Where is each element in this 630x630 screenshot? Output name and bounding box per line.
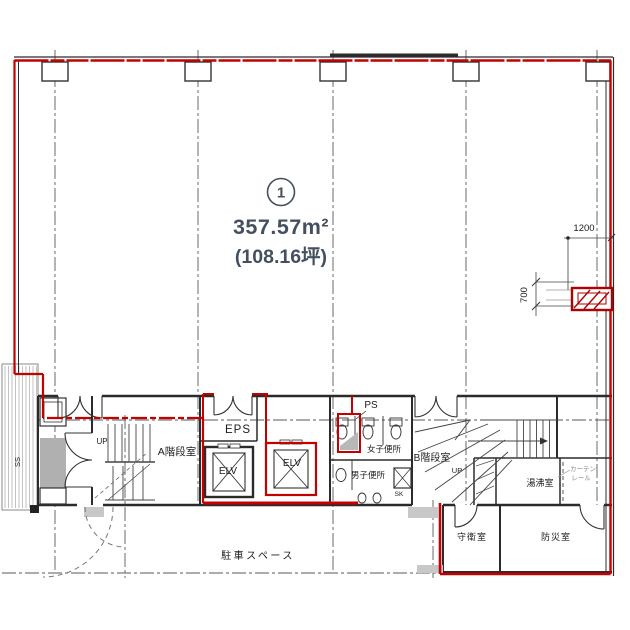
- dim-700-label: 700: [519, 287, 530, 303]
- red-boundary: [15, 60, 612, 574]
- unit-number: 1: [277, 185, 285, 202]
- floor-plan-svg: 1200 700 1 357.57m² (108.16坪) A階段室 UP EP…: [0, 0, 630, 630]
- hot-water-room-label: 湯沸室: [526, 477, 553, 488]
- louver-hatch: [2, 364, 38, 510]
- stair-a-label: A階段室: [158, 445, 197, 458]
- womens-toilet-label: 女子便所: [367, 444, 402, 454]
- elv-right-label: ELV: [283, 458, 301, 469]
- red-detail-box: [546, 288, 612, 310]
- unit-area-label: 1 357.57m² (108.16坪): [233, 179, 329, 269]
- curtain-rail-label-1: カーテン: [570, 465, 596, 473]
- stair-b-label: B階段室: [414, 451, 451, 464]
- eps-label: EPS: [225, 424, 251, 436]
- disaster-room-label: 防災室: [541, 531, 571, 542]
- unit-area-sqm: 357.57m²: [233, 215, 329, 239]
- up-b-label: UP: [452, 466, 462, 475]
- sk-label: SK: [395, 491, 404, 498]
- grid-lines: [2, 50, 610, 578]
- ps-label: PS: [364, 400, 378, 411]
- core-walls: [30, 396, 612, 572]
- mens-toilet-label: 男子便所: [351, 470, 386, 480]
- wall-block: [30, 505, 39, 513]
- columns: [42, 62, 610, 81]
- unit-area-tsubo: (108.16坪): [235, 246, 327, 268]
- ss-label: SS: [13, 457, 22, 467]
- elv-left-label: ELV: [219, 466, 237, 477]
- outer-walls: [14, 55, 614, 576]
- dim-1200-label: 1200: [573, 223, 594, 234]
- curtain-rail-label-2: レール: [571, 475, 591, 482]
- dimension-700: 700: [519, 272, 574, 316]
- dimension-1200: 1200: [564, 223, 615, 290]
- parking-space-label: 駐車スペース: [221, 549, 295, 562]
- up-a-label: UP: [96, 437, 107, 446]
- guard-room-label: 守衛室: [457, 531, 487, 542]
